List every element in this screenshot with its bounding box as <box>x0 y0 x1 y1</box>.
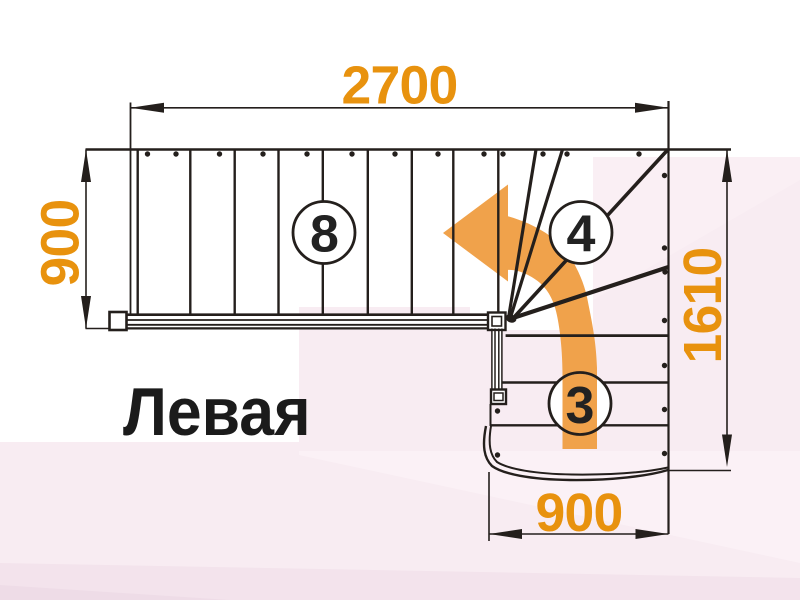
svg-text:Левая: Левая <box>123 374 311 450</box>
svg-text:1610: 1610 <box>674 247 733 363</box>
svg-text:900: 900 <box>535 484 622 543</box>
svg-text:8: 8 <box>310 206 339 264</box>
svg-text:3: 3 <box>566 377 595 435</box>
svg-text:4: 4 <box>567 206 596 264</box>
svg-text:900: 900 <box>32 199 91 286</box>
svg-text:2700: 2700 <box>341 57 457 116</box>
